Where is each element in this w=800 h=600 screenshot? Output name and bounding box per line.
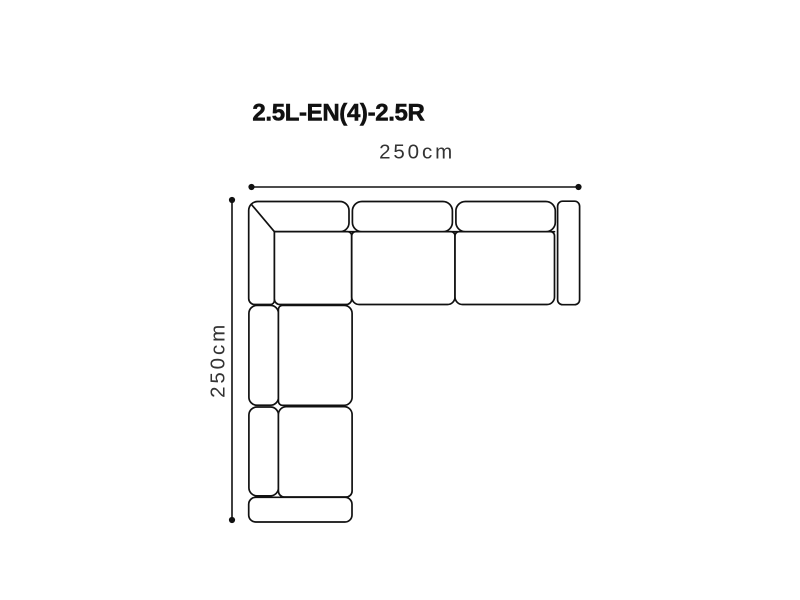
svg-text:250cm: 250cm xyxy=(379,140,455,163)
svg-text:250cm: 250cm xyxy=(207,322,230,398)
svg-text:2.5L-EN(4)-2.5R: 2.5L-EN(4)-2.5R xyxy=(252,100,424,127)
